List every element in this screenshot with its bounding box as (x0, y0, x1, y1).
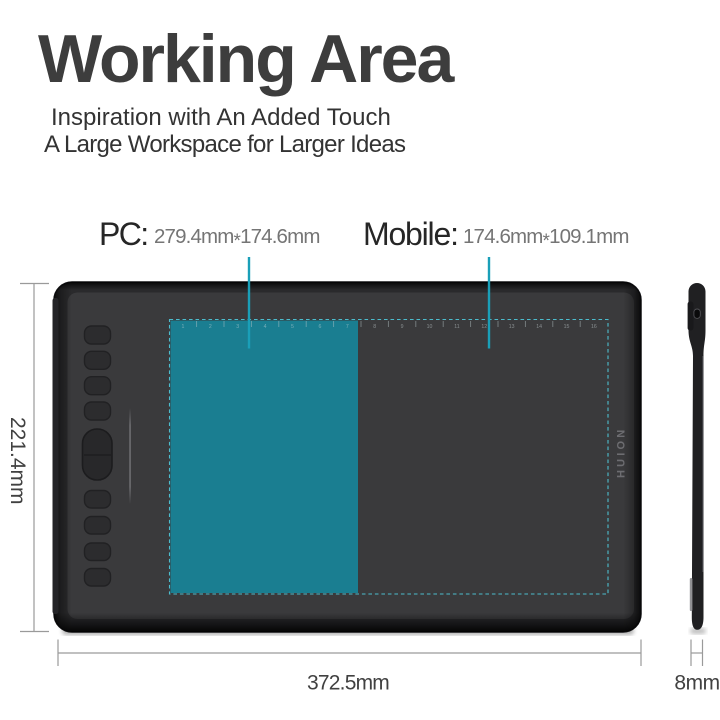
svg-text:13: 13 (509, 324, 515, 330)
svg-text:8mm: 8mm (674, 672, 719, 695)
svg-text:372.5mm: 372.5mm (307, 672, 389, 695)
svg-text:221.4mm: 221.4mm (6, 417, 29, 505)
svg-text:15: 15 (564, 324, 570, 330)
svg-text:14: 14 (536, 324, 542, 330)
svg-text:4: 4 (264, 324, 267, 330)
svg-text:11: 11 (454, 324, 459, 330)
svg-text:12: 12 (481, 324, 487, 330)
svg-text:8: 8 (373, 324, 376, 330)
svg-text:3: 3 (236, 324, 239, 330)
svg-text:6: 6 (318, 324, 321, 330)
svg-text:HUION: HUION (616, 427, 628, 478)
svg-text:5: 5 (291, 324, 294, 330)
svg-text:1: 1 (181, 324, 184, 330)
svg-text:10: 10 (427, 324, 433, 330)
svg-text:2: 2 (209, 324, 212, 330)
svg-text:9: 9 (401, 324, 404, 330)
svg-text:16: 16 (591, 324, 597, 330)
svg-text:7: 7 (346, 324, 349, 330)
